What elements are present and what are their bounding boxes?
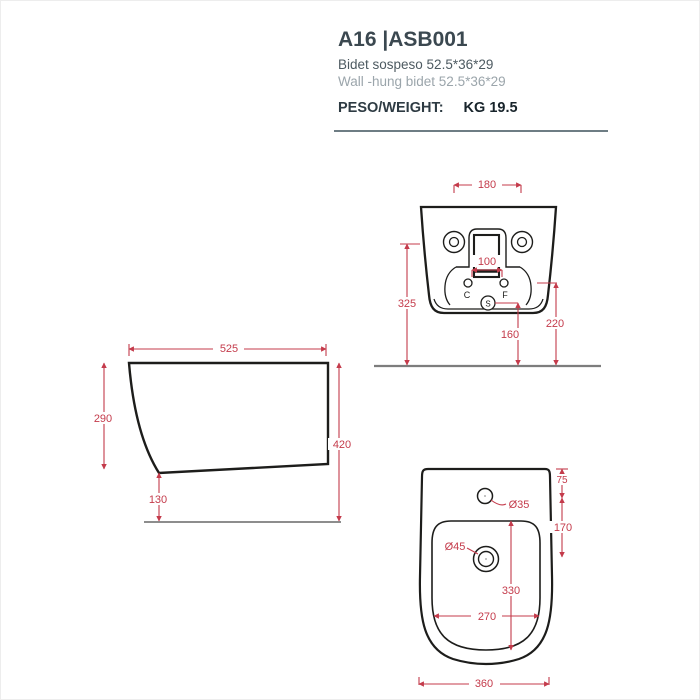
cold-water-hole <box>464 279 472 287</box>
hot-water-hole <box>500 279 508 287</box>
dim-total-height: 420 <box>328 363 357 521</box>
dim-overall-width-label: 360 <box>475 678 493 690</box>
dim-tap-setback-label: 75 <box>556 475 568 486</box>
dim-mount-spacing: 180 <box>454 178 521 193</box>
dim-depth-label: 525 <box>220 343 238 355</box>
dim-depth: 525 <box>129 342 326 356</box>
dim-tap-setback: 75 <box>552 469 573 498</box>
mount-hole-right <box>512 232 533 253</box>
dim-basin-width-label: 270 <box>478 611 496 623</box>
dim-overall-width: 360 <box>419 677 549 690</box>
dim-mount-spacing-label: 180 <box>478 179 496 191</box>
mount-hole-left <box>444 232 465 253</box>
technical-spec-sheet: A16 |ASB001 Bidet sospeso 52.5*36*29 Wal… <box>0 0 700 700</box>
hot-water-label: F <box>502 290 508 300</box>
dim-mount-height-label: 325 <box>398 298 416 310</box>
dim-total-height-label: 420 <box>333 439 351 451</box>
tap-hole-diameter-label: Ø35 <box>509 499 530 511</box>
dim-tap-to-drain-label: 170 <box>554 522 572 534</box>
drawing-canvas: 100 C F S 180 325 <box>1 1 700 700</box>
cold-water-label: C <box>464 290 471 300</box>
tap-hole-center <box>484 495 486 497</box>
dim-inlet-height-label: 220 <box>546 318 564 330</box>
dim-basin-length-label: 330 <box>502 585 520 597</box>
top-view: 75 170 Ø35 Ø45 330 <box>419 469 578 690</box>
drain-outlet-label: S <box>485 300 490 309</box>
drain-center <box>485 558 487 560</box>
dim-inlet-spacing-label: 100 <box>478 256 496 268</box>
side-outline <box>129 363 328 473</box>
drain-hole-diameter-label: Ø45 <box>445 541 466 553</box>
dim-mount-height: 325 <box>393 244 421 365</box>
dim-drain-height-label: 160 <box>501 329 519 341</box>
dim-tap-to-drain: 170 <box>549 498 578 557</box>
dim-bottom-clearance-label: 130 <box>149 494 167 506</box>
rear-view: 100 C F S 180 325 <box>374 178 601 366</box>
dim-front-height-label: 290 <box>94 413 112 425</box>
dim-front-height: 290 <box>89 363 118 469</box>
side-view: 525 290 420 130 <box>89 342 357 522</box>
dim-bottom-clearance: 130 <box>144 473 173 521</box>
